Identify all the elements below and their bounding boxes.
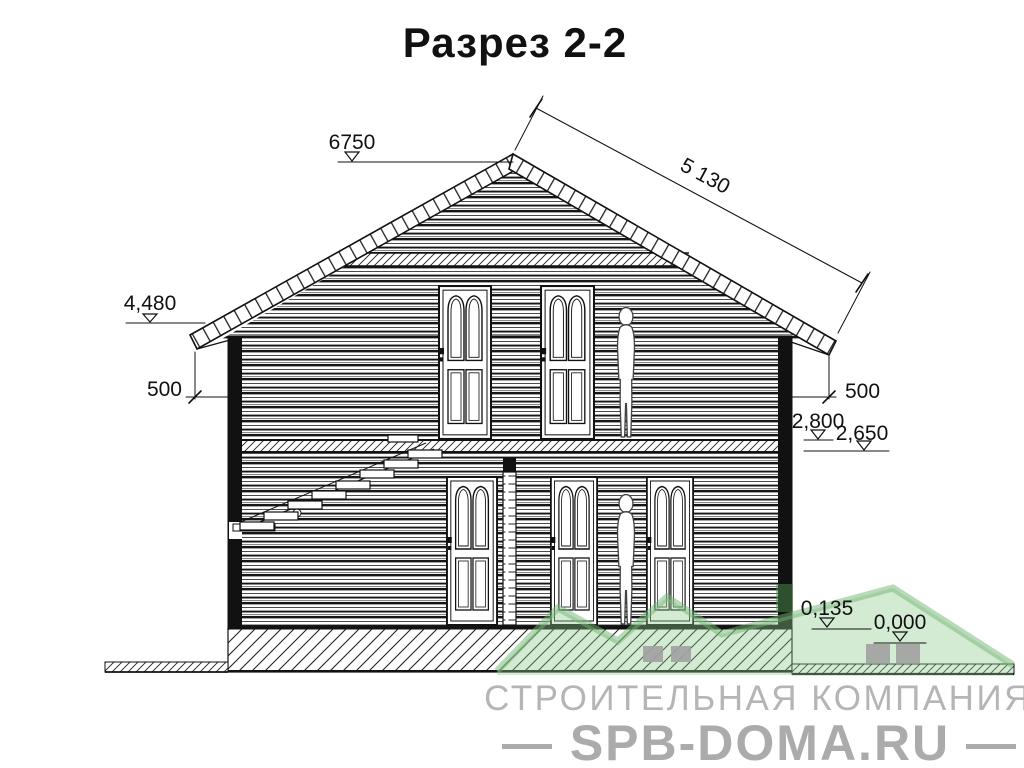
section-drawing: Разрез 2-2 6750 5 130 4,480 50 [0,0,1024,768]
door-floor1-middle [551,477,597,625]
page-title: Разрез 2-2 [403,19,627,66]
door-floor2-left [439,286,491,439]
logo-window [896,644,920,663]
corner-post-right [778,336,792,627]
corner-post-left [228,336,242,627]
dimension-eave-right: 500 [790,355,880,403]
logo-window [643,646,663,662]
dim-label-roof-slope: 5 130 [676,154,733,199]
logo-window [866,644,890,663]
dim-label-500-left: 500 [147,378,182,401]
dimension-eave-left: 500 [147,352,232,403]
dim-label-500-right: 500 [845,380,880,403]
door-floor2-right [541,286,594,439]
dim-label-ridge: 6750 [329,131,376,154]
logo-website: — SPB-DOMA.RU — [502,715,1018,768]
logo-company-name: СТРОИТЕЛЬНАЯ КОМПАНИЯ [484,679,1024,718]
dim-label-eave: 4,480 [124,292,177,315]
dim-label-ground: 0,000 [874,611,927,634]
door-floor1-left [447,477,497,625]
logo-chimney [776,584,793,612]
logo-window [671,646,691,662]
interfloor-band [242,440,778,452]
elevation-mark-eave: 4,480 [124,292,205,323]
elevation-mark-ridge: 6750 [329,131,513,162]
dim-label-plinth: 0,135 [801,597,854,620]
partition-post [503,458,516,625]
ground-left [105,662,228,672]
attic-ceiling-band [337,253,689,266]
